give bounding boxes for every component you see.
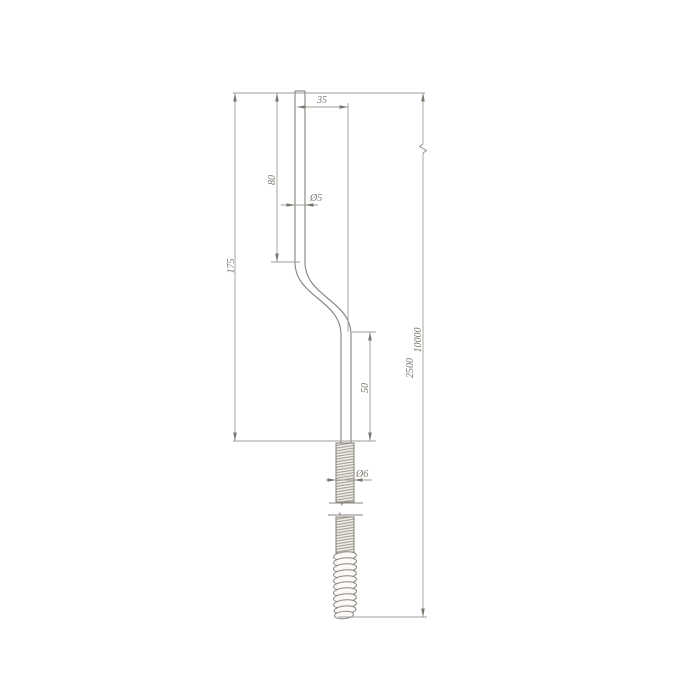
dim-label-80: 80 xyxy=(267,175,278,185)
thread-upper-section xyxy=(336,443,354,502)
arrow-right-icon xyxy=(328,478,337,482)
arrow-down-icon xyxy=(275,254,279,263)
arrow-down-icon xyxy=(368,433,372,442)
rod-s-bend xyxy=(295,262,351,335)
dim-label-dia5: Ø5 xyxy=(309,193,322,204)
arrow-up-icon xyxy=(275,93,279,102)
break-mark-icon xyxy=(420,144,427,153)
dim-label-2500: 2500 xyxy=(405,358,416,378)
thread-break xyxy=(328,503,363,515)
extension-lines xyxy=(233,93,427,617)
leader-rod-diameter: Ø5 xyxy=(281,193,322,207)
dim-label-dia6: Ø6 xyxy=(355,469,368,480)
dim-overall-length: 2500 10000 xyxy=(405,93,427,617)
arrow-right-icon xyxy=(287,203,296,207)
dim-upper-total: 175 xyxy=(226,93,237,441)
dim-label-50: 50 xyxy=(360,383,371,393)
arrow-up-icon xyxy=(233,93,237,102)
dim-lower-segment: 50 xyxy=(360,332,372,441)
rod-part xyxy=(295,91,363,620)
technical-drawing: 175 80 35 Ø5 50 Ø6 xyxy=(0,0,700,700)
thread-lower-section xyxy=(336,517,354,553)
arrow-up-icon xyxy=(368,332,372,341)
arrow-up-icon xyxy=(421,93,425,102)
arrow-left-icon xyxy=(297,105,306,109)
drawing-canvas: 175 80 35 Ø5 50 Ø6 xyxy=(0,0,700,700)
coil-tip xyxy=(333,551,357,620)
rod-lower-segment xyxy=(341,335,351,443)
dim-label-175: 175 xyxy=(226,259,237,274)
arrow-down-icon xyxy=(421,609,425,618)
dim-label-10000: 10000 xyxy=(413,328,424,353)
arrow-down-icon xyxy=(233,433,237,442)
dim-upper-segment: 80 xyxy=(267,93,279,262)
rod-top-segment xyxy=(295,91,305,262)
dim-label-35: 35 xyxy=(316,95,327,106)
arrow-right-icon xyxy=(340,105,349,109)
